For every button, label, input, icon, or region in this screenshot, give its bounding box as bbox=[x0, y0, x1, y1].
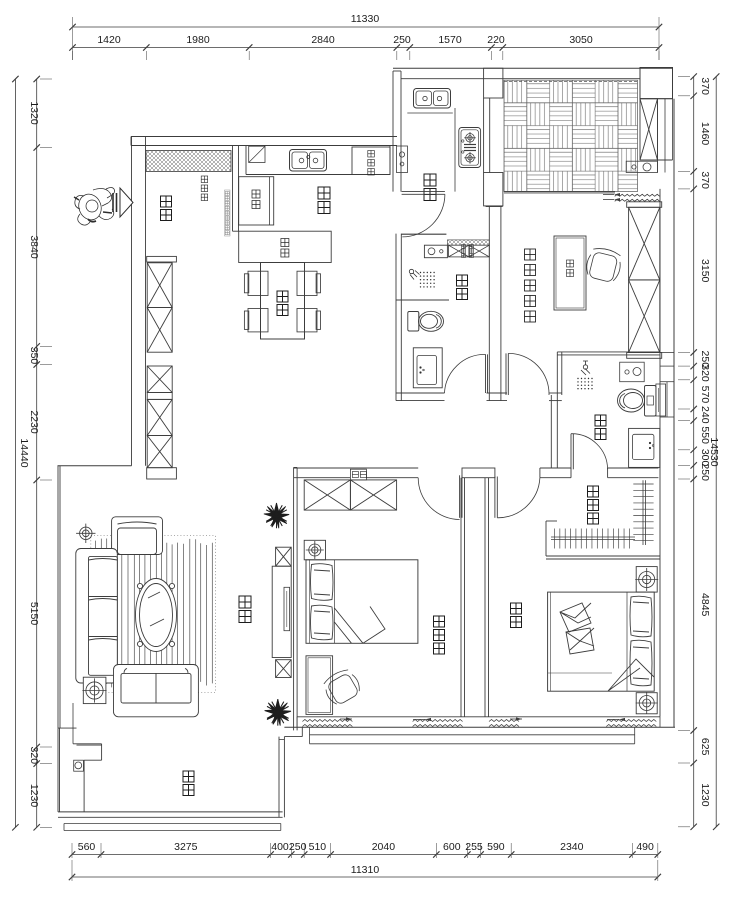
svg-text:1980: 1980 bbox=[186, 34, 210, 46]
svg-text:625: 625 bbox=[699, 738, 711, 756]
svg-text:350: 350 bbox=[28, 347, 40, 365]
svg-text:5150: 5150 bbox=[28, 602, 40, 626]
svg-text:1420: 1420 bbox=[97, 34, 121, 46]
svg-text:4845: 4845 bbox=[699, 593, 711, 617]
svg-text:250: 250 bbox=[289, 841, 307, 853]
svg-text:1460: 1460 bbox=[699, 122, 711, 146]
svg-text:11310: 11310 bbox=[351, 864, 380, 876]
svg-text:510: 510 bbox=[309, 841, 327, 853]
svg-text:400: 400 bbox=[271, 841, 289, 853]
svg-text:14440: 14440 bbox=[18, 438, 30, 467]
svg-text:490: 490 bbox=[636, 841, 654, 853]
svg-text:570: 570 bbox=[699, 386, 711, 404]
svg-text:320: 320 bbox=[28, 747, 40, 765]
svg-text:250: 250 bbox=[393, 34, 411, 46]
svg-text:2230: 2230 bbox=[28, 410, 40, 434]
svg-text:1570: 1570 bbox=[438, 34, 462, 46]
svg-text:1320: 1320 bbox=[28, 101, 40, 125]
svg-text:3275: 3275 bbox=[174, 841, 198, 853]
svg-text:560: 560 bbox=[78, 841, 96, 853]
svg-text:1230: 1230 bbox=[28, 784, 40, 808]
svg-text:370: 370 bbox=[699, 77, 711, 95]
svg-text:600: 600 bbox=[443, 841, 461, 853]
svg-text:590: 590 bbox=[487, 841, 505, 853]
svg-text:2340: 2340 bbox=[560, 841, 584, 853]
svg-text:320: 320 bbox=[699, 364, 711, 382]
svg-text:14530: 14530 bbox=[708, 437, 720, 466]
svg-text:370: 370 bbox=[699, 171, 711, 189]
svg-text:11330: 11330 bbox=[351, 13, 380, 25]
svg-text:3050: 3050 bbox=[569, 34, 593, 46]
svg-text:2840: 2840 bbox=[311, 34, 335, 46]
svg-text:240: 240 bbox=[699, 406, 711, 424]
svg-text:255: 255 bbox=[465, 841, 483, 853]
svg-text:220: 220 bbox=[487, 34, 505, 46]
svg-text:3150: 3150 bbox=[699, 259, 711, 283]
svg-text:2040: 2040 bbox=[372, 841, 396, 853]
svg-text:3840: 3840 bbox=[28, 235, 40, 259]
svg-text:1230: 1230 bbox=[699, 783, 711, 807]
